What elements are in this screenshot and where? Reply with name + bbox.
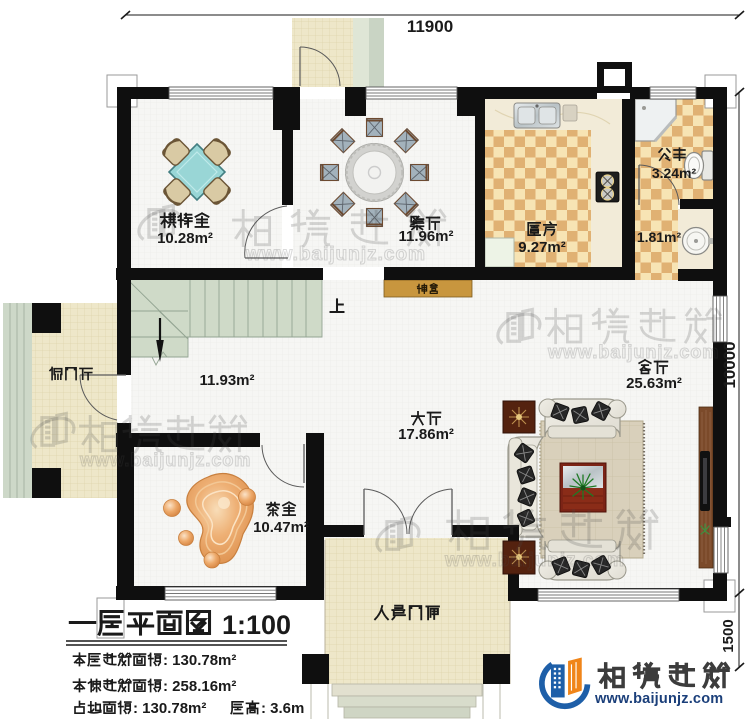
svg-text:9.27m²: 9.27m² xyxy=(518,239,566,256)
svg-text:www.baijunjz.com: www.baijunjz.com xyxy=(245,244,426,265)
svg-text:: 258.16m²: : 258.16m² xyxy=(163,678,236,695)
svg-text:25.63m²: 25.63m² xyxy=(626,375,682,392)
svg-text:1.81m²: 1.81m² xyxy=(637,229,682,245)
svg-text:: 130.78m²: : 130.78m² xyxy=(133,700,206,717)
svg-text:11.93m²: 11.93m² xyxy=(199,372,254,389)
svg-text:www.baijunjz.com: www.baijunjz.com xyxy=(547,342,719,362)
svg-text:www.baijunjz.com: www.baijunjz.com xyxy=(444,550,625,571)
svg-text:1500: 1500 xyxy=(720,619,737,652)
svg-text:11.96m²: 11.96m² xyxy=(398,228,453,245)
svg-text:10.28m²: 10.28m² xyxy=(157,230,213,247)
svg-text:: 3.6m: : 3.6m xyxy=(261,700,304,717)
svg-text:10.47m²: 10.47m² xyxy=(253,519,309,536)
svg-text:17.86m²: 17.86m² xyxy=(398,426,454,443)
svg-text:3.24m²: 3.24m² xyxy=(652,165,697,181)
svg-text:: 130.78m²: : 130.78m² xyxy=(163,652,236,669)
svg-text:10000: 10000 xyxy=(720,341,739,388)
svg-text:11900: 11900 xyxy=(407,17,453,36)
svg-text:www.baijunjz.com: www.baijunjz.com xyxy=(594,691,723,707)
svg-text:1:100: 1:100 xyxy=(222,610,291,640)
svg-text:www.baijunjz.com: www.baijunjz.com xyxy=(79,450,251,470)
